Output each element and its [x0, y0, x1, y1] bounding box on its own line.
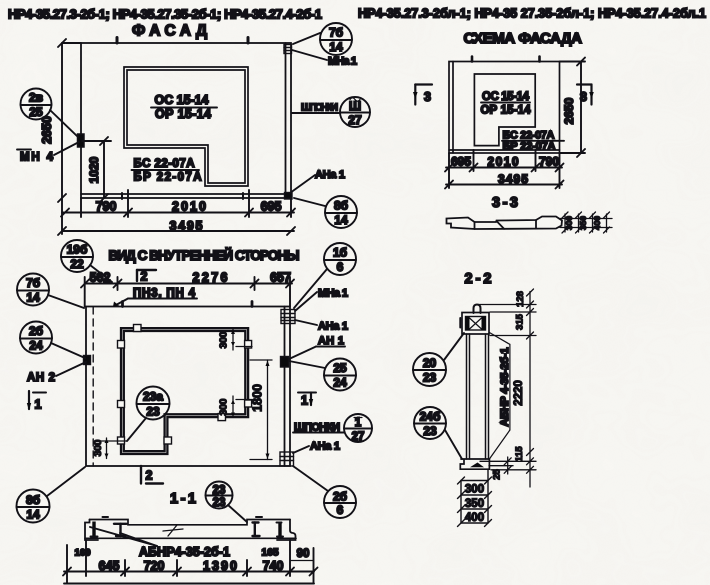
svg-text:25: 25 — [492, 469, 503, 480]
svg-text:23: 23 — [423, 371, 437, 385]
svg-text:НР4-35.27.3-2б-1; НР4-35.27.35: НР4-35.27.3-2б-1; НР4-35.27.35-2б-1; НР4… — [8, 7, 322, 22]
svg-text:6: 6 — [337, 503, 344, 517]
svg-text:14: 14 — [334, 213, 348, 227]
svg-text:19б: 19б — [67, 243, 88, 257]
svg-text:1б: 1б — [333, 246, 347, 260]
svg-text:2: 2 — [141, 270, 148, 284]
svg-text:20: 20 — [423, 356, 437, 370]
svg-text:27: 27 — [348, 113, 362, 127]
svg-text:2010: 2010 — [488, 155, 519, 169]
svg-text:7б: 7б — [329, 26, 343, 40]
svg-text:АНа 1: АНа 1 — [315, 169, 345, 181]
svg-text:АН 2: АН 2 — [27, 372, 55, 384]
svg-text:ОР 15-14: ОР 15-14 — [155, 107, 211, 121]
svg-text:23а: 23а — [143, 390, 163, 404]
svg-text:3495: 3495 — [170, 219, 203, 233]
svg-text:АНа 1: АНа 1 — [318, 321, 348, 333]
svg-text:6: 6 — [337, 260, 344, 274]
svg-text:400: 400 — [465, 512, 484, 524]
svg-text:24: 24 — [29, 339, 43, 353]
svg-text:24: 24 — [333, 376, 347, 390]
svg-text:400: 400 — [592, 216, 602, 230]
svg-text:ШПОНКИ: ШПОНКИ — [301, 102, 338, 114]
svg-text:790: 790 — [539, 155, 559, 169]
svg-text:ВИД С ВНУТРЕННЕЙ СТОРОНЫ: ВИД С ВНУТРЕННЕЙ СТОРОНЫ — [109, 248, 300, 263]
svg-text:695: 695 — [451, 155, 471, 169]
svg-text:24б: 24б — [420, 410, 441, 424]
svg-text:3495: 3495 — [498, 172, 528, 186]
svg-text:АН 1: АН 1 — [318, 335, 344, 347]
svg-text:БС 22-07А: БС 22-07А — [134, 158, 195, 170]
svg-text:25: 25 — [333, 361, 347, 375]
svg-text:МНа 1: МНа 1 — [328, 56, 357, 68]
svg-text:1: 1 — [35, 398, 42, 412]
svg-text:2: 2 — [146, 469, 153, 483]
svg-text:720: 720 — [144, 559, 165, 573]
svg-text:300: 300 — [92, 439, 104, 456]
svg-text:МНа 1: МНа 1 — [318, 288, 348, 300]
svg-text:НР4-35.27.3-2бл-1; НР4-35 27.3: НР4-35.27.3-2бл-1; НР4-35 27.35-2бл-1; Н… — [358, 7, 706, 21]
svg-text:1800: 1800 — [251, 384, 265, 412]
svg-text:14: 14 — [329, 40, 343, 54]
svg-text:165: 165 — [262, 548, 279, 559]
svg-text:23: 23 — [213, 497, 226, 509]
svg-text:23: 23 — [213, 485, 226, 497]
svg-text:90: 90 — [297, 548, 310, 560]
svg-text:350: 350 — [578, 216, 588, 230]
svg-text:645: 645 — [99, 559, 120, 573]
svg-text:2650: 2650 — [40, 116, 54, 144]
svg-text:2650: 2650 — [562, 97, 576, 124]
svg-text:25: 25 — [29, 105, 43, 119]
svg-text:АБНР 4-35-2б-1: АБНР 4-35-2б-1 — [499, 348, 511, 427]
svg-text:115: 115 — [514, 446, 525, 462]
svg-text:8б: 8б — [334, 199, 348, 213]
svg-text:14: 14 — [26, 508, 40, 522]
svg-text:2-2: 2-2 — [465, 271, 492, 287]
svg-text:695: 695 — [261, 200, 282, 214]
svg-text:300: 300 — [218, 331, 230, 348]
svg-text:3-3: 3-3 — [492, 195, 518, 211]
svg-text:740: 740 — [263, 559, 284, 573]
svg-text:СХЕМА ФАСАДА: СХЕМА ФАСАДА — [464, 30, 583, 47]
svg-text:ОР 15-14: ОР 15-14 — [481, 105, 532, 117]
svg-text:2220: 2220 — [513, 380, 525, 406]
svg-text:350: 350 — [465, 498, 484, 510]
svg-text:АНа 1: АНа 1 — [310, 441, 340, 453]
svg-text:7б: 7б — [26, 276, 40, 290]
svg-text:300: 300 — [218, 398, 230, 415]
svg-text:14: 14 — [26, 291, 40, 305]
svg-text:8б: 8б — [26, 493, 40, 507]
svg-text:160: 160 — [75, 548, 91, 559]
svg-text:3: 3 — [424, 90, 431, 104]
svg-text:1-1: 1-1 — [170, 491, 196, 507]
svg-text:ОС 15-14: ОС 15-14 — [155, 93, 209, 107]
svg-text:БР 22-07А: БР 22-07А — [503, 141, 556, 153]
svg-text:657: 657 — [270, 271, 291, 285]
svg-text:2б: 2б — [29, 324, 43, 338]
svg-text:300: 300 — [564, 216, 574, 230]
svg-text:2б: 2б — [333, 490, 347, 504]
svg-text:128: 128 — [515, 291, 526, 307]
svg-text:1: 1 — [301, 394, 308, 408]
svg-text:МН 4: МН 4 — [20, 152, 54, 164]
svg-text:27: 27 — [352, 431, 365, 443]
svg-text:ФАСАД: ФАСАД — [132, 23, 210, 40]
svg-text:23: 23 — [146, 405, 160, 419]
svg-text:790: 790 — [96, 200, 117, 214]
svg-text:ОС 15-14: ОС 15-14 — [482, 91, 530, 103]
svg-text:22: 22 — [70, 257, 84, 271]
svg-text:БР 22-07А: БР 22-07А — [134, 172, 202, 184]
svg-text:23: 23 — [423, 424, 437, 438]
svg-text:1: 1 — [355, 417, 362, 429]
svg-text:АБНР4-35-2б-1: АБНР4-35-2б-1 — [139, 545, 230, 559]
svg-text:1020: 1020 — [87, 156, 101, 183]
svg-text:315: 315 — [515, 313, 526, 330]
svg-text:2в: 2в — [29, 91, 43, 105]
svg-text:300: 300 — [465, 484, 484, 496]
